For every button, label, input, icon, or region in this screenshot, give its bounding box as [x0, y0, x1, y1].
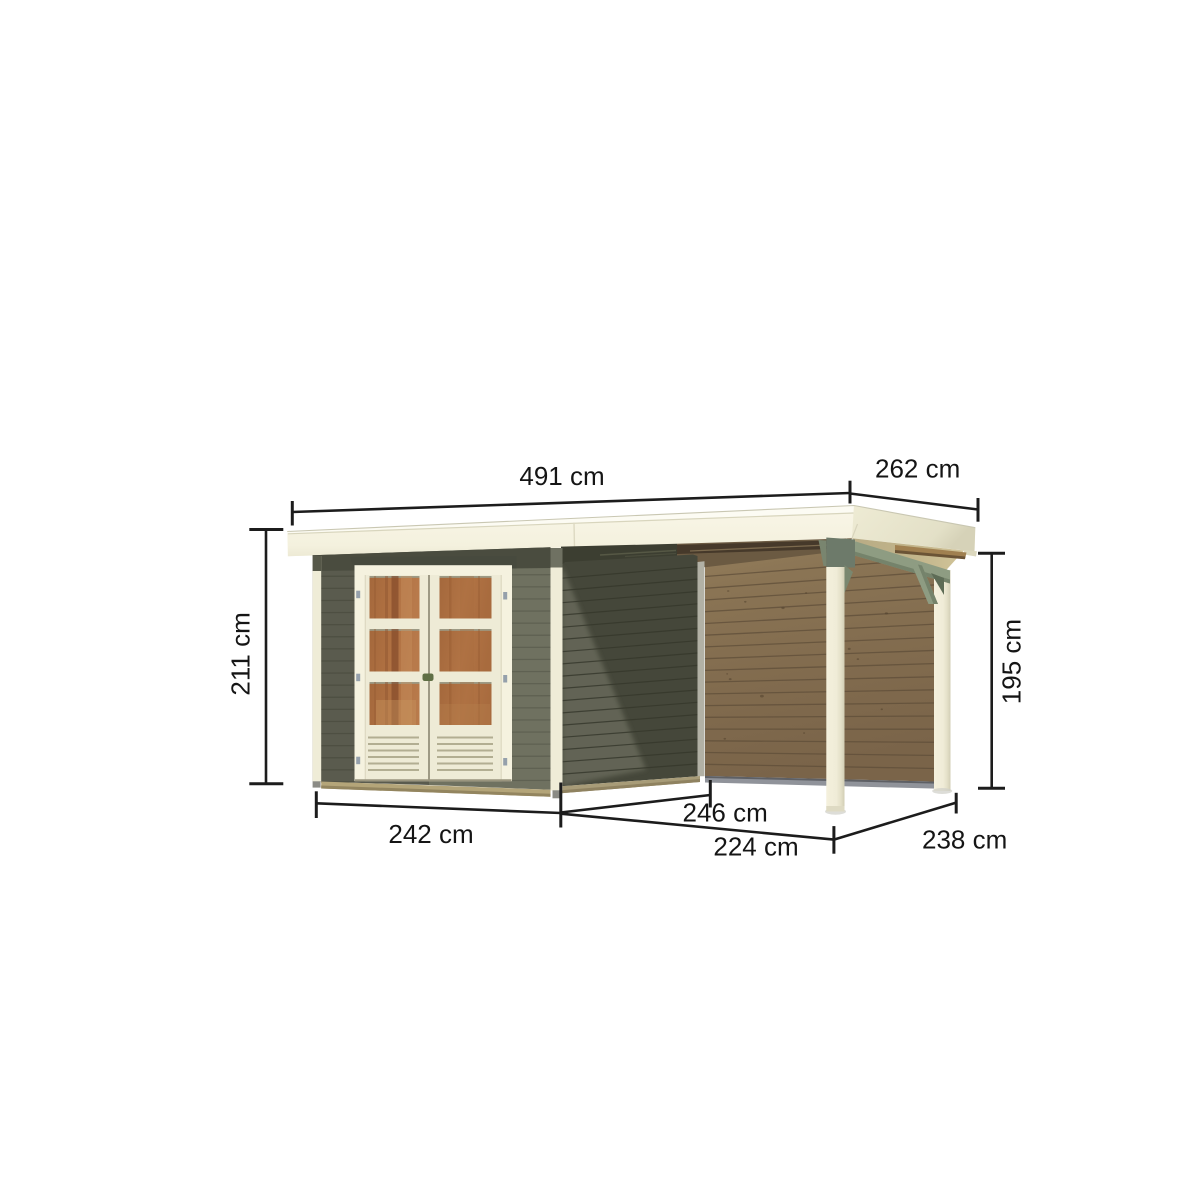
svg-text:262 cm: 262 cm — [875, 454, 960, 484]
svg-text:491 cm: 491 cm — [519, 461, 604, 491]
svg-text:224 cm: 224 cm — [713, 831, 798, 861]
svg-text:238 cm: 238 cm — [922, 824, 1007, 854]
svg-text:195 cm: 195 cm — [997, 619, 1027, 704]
svg-text:242 cm: 242 cm — [388, 819, 473, 849]
svg-text:211 cm: 211 cm — [225, 612, 255, 695]
svg-text:246 cm: 246 cm — [683, 798, 768, 828]
